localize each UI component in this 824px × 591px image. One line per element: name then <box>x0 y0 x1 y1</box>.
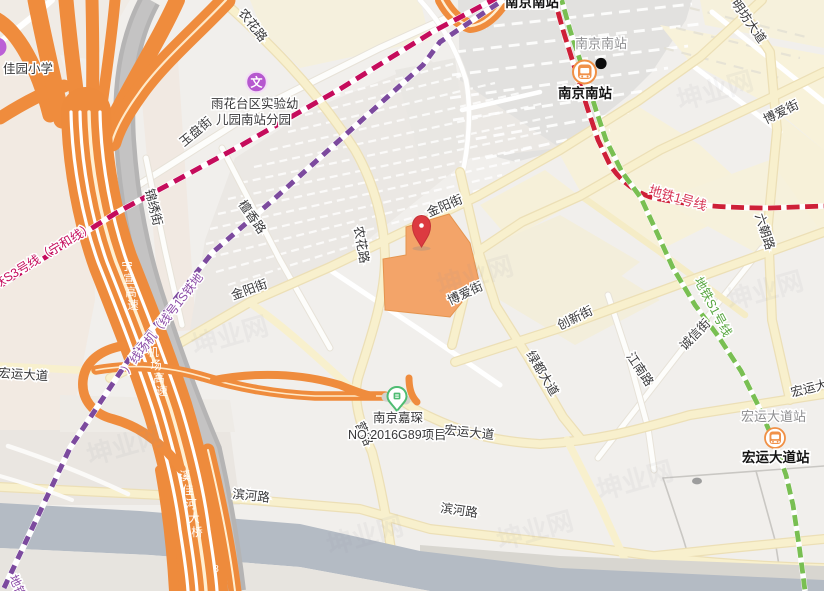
svg-text:南京南站: 南京南站 <box>575 36 627 51</box>
svg-text:NO.2016G89项目: NO.2016G89项目 <box>348 428 447 442</box>
svg-text:8: 8 <box>213 564 219 575</box>
svg-text:速: 速 <box>127 299 139 312</box>
svg-text:河: 河 <box>185 498 197 511</box>
svg-text:速: 速 <box>156 385 168 398</box>
svg-text:南京南站: 南京南站 <box>558 85 612 101</box>
svg-text:桥: 桥 <box>191 526 203 539</box>
svg-text:宏运大道站: 宏运大道站 <box>742 449 810 465</box>
svg-text:文: 文 <box>250 75 263 90</box>
svg-text:南京南站: 南京南站 <box>505 0 559 10</box>
svg-text:雨花台区实验幼: 雨花台区实验幼 <box>211 96 299 111</box>
svg-text:宣: 宣 <box>123 272 135 286</box>
svg-text:高: 高 <box>125 285 137 299</box>
svg-text:佳园小学: 佳园小学 <box>3 61 53 76</box>
svg-text:高: 高 <box>153 371 165 385</box>
svg-text:宏运大道站: 宏运大道站 <box>741 409 806 424</box>
svg-text:儿园南站分园: 儿园南站分园 <box>216 112 291 127</box>
svg-text:南京嘉琛: 南京嘉琛 <box>373 410 424 425</box>
svg-text:大: 大 <box>188 511 200 525</box>
svg-text:宁: 宁 <box>121 259 133 273</box>
svg-text:佳: 佳 <box>182 483 194 497</box>
svg-text:场: 场 <box>150 358 162 372</box>
svg-text:溪: 溪 <box>179 470 191 483</box>
